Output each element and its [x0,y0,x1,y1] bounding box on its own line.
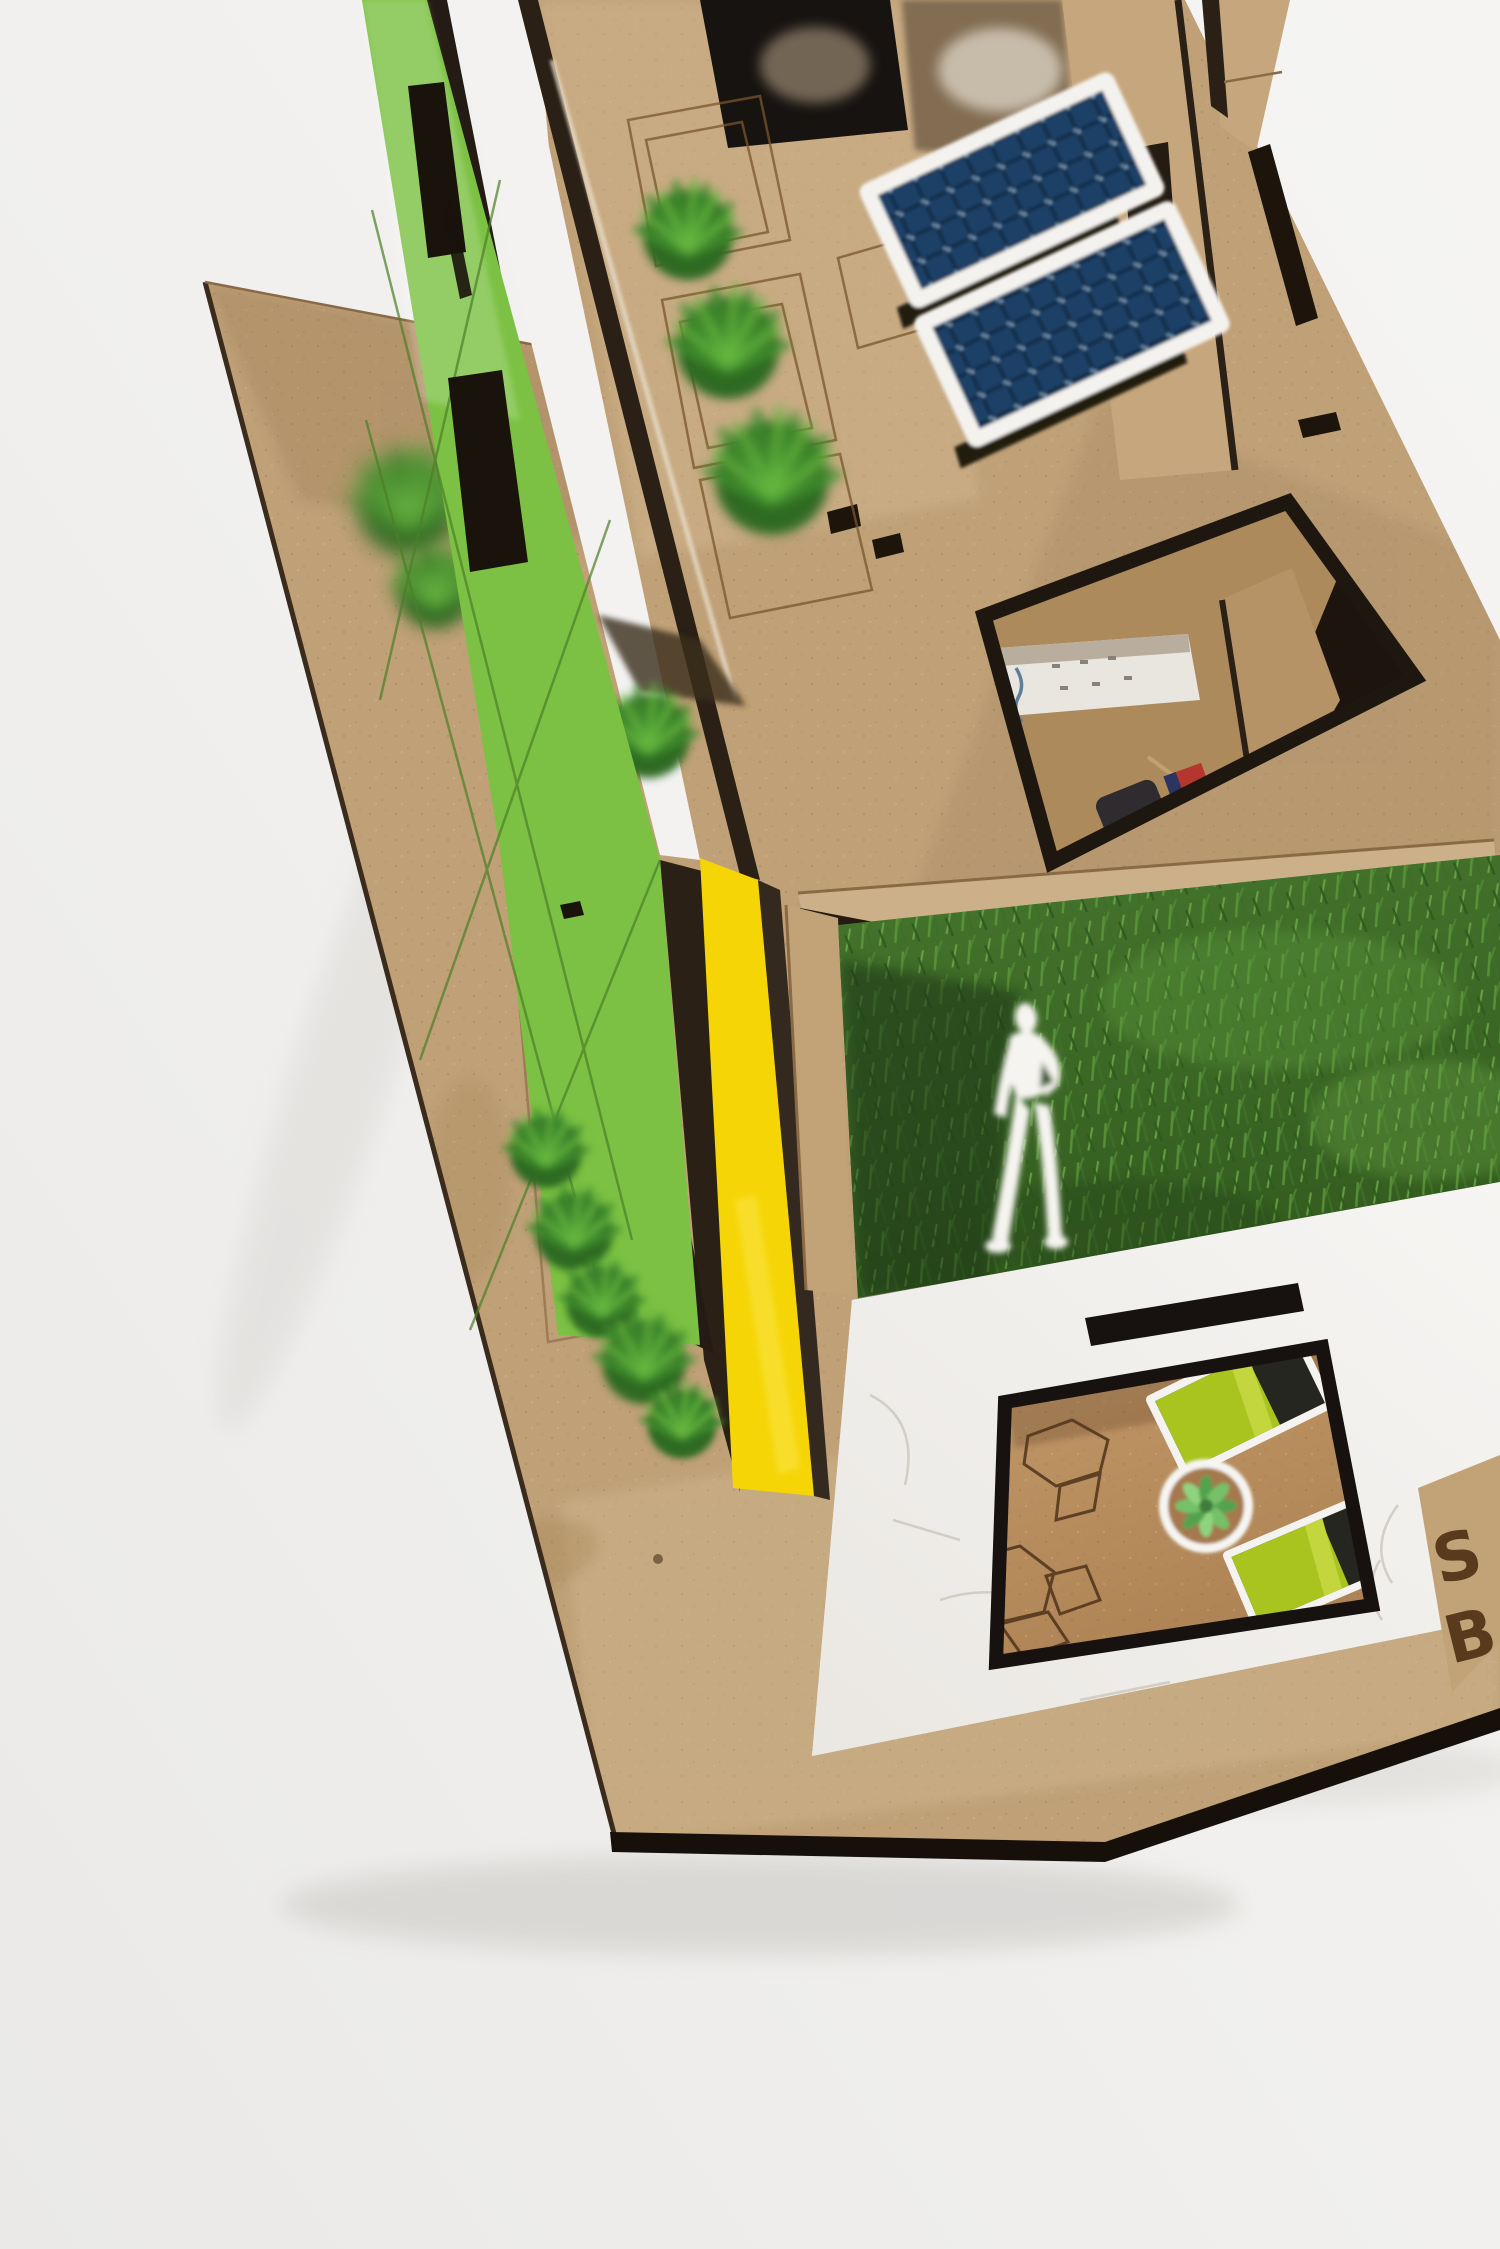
figure-foot [1044,1235,1068,1249]
stairwell-interior-blur [760,27,870,103]
architectural-model-photo: S B [0,0,1500,2249]
base-shadow [280,1855,1240,1955]
figure-foot [985,1239,1011,1253]
potted-plant [1159,1459,1253,1553]
model-photo-canvas: S B [0,0,1500,2249]
upper-interior-highlight [938,28,1062,112]
